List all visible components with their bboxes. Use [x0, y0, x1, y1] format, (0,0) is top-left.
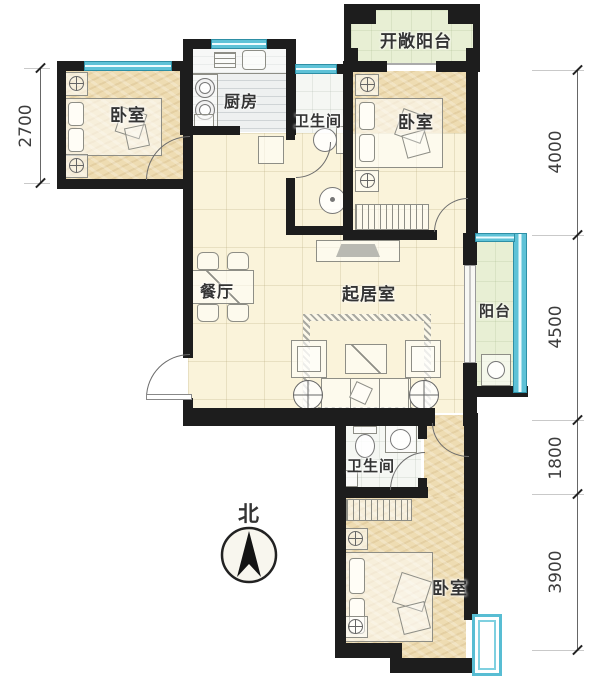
washing-machine-door-icon [487, 361, 505, 379]
kitchen-counter [192, 48, 288, 74]
lamp-icon [69, 76, 84, 91]
door-sill [387, 63, 436, 65]
wall [335, 413, 346, 653]
floor-plan: 卧室 厨房 卫生间 卧室 开敞阳台 餐厅 起居室 阳台 卫生间 卧室 北 270… [0, 0, 600, 680]
room-label-dining-room: 餐厅 [200, 278, 234, 302]
stove-burner [195, 78, 215, 98]
hallway-cabinet [258, 136, 284, 164]
wall [183, 408, 435, 426]
lamp-icon [348, 531, 363, 546]
wall [390, 658, 473, 673]
bay-window [472, 614, 502, 676]
dimension-label-4500: 4500 [546, 301, 566, 353]
compass [220, 526, 278, 584]
range-hood-icon [214, 52, 236, 68]
pillow [359, 102, 375, 130]
chair [227, 304, 249, 322]
window [84, 61, 172, 71]
column [466, 48, 480, 68]
armchair-cushion [297, 346, 321, 372]
dimension-label-3900: 3900 [546, 546, 566, 598]
pillow [349, 558, 365, 594]
side-table [293, 380, 323, 410]
dimension-line [40, 68, 41, 183]
dimension-line [577, 70, 578, 650]
balcony-sliding-door [464, 265, 476, 363]
room-label-bedroom-top-left: 卧室 [110, 101, 146, 126]
kitchen-sink [242, 50, 266, 70]
lamp-icon [360, 77, 375, 92]
chair [197, 304, 219, 322]
room-label-bedroom-bottom: 卧室 [432, 574, 468, 599]
wall [418, 423, 427, 439]
coffee-table [345, 344, 387, 374]
dimension-label-4000: 4000 [546, 126, 566, 178]
wall [183, 39, 193, 134]
pillow [68, 128, 84, 152]
washbasin [390, 429, 411, 450]
room-label-living-room: 起居室 [342, 280, 396, 305]
entry-door-leaf [146, 394, 192, 400]
window [475, 233, 515, 242]
chair [227, 252, 249, 270]
wall [57, 61, 66, 189]
armchair-cushion [411, 346, 435, 372]
north-label: 北 [238, 498, 260, 528]
window [513, 233, 527, 393]
pillow [68, 102, 84, 126]
wall [335, 643, 397, 658]
toilet-tank [353, 426, 377, 434]
pillow [359, 134, 375, 162]
room-label-bathroom-top: 卫生间 [294, 110, 342, 131]
north-arrow-icon [220, 526, 278, 584]
wall [57, 179, 190, 189]
lamp-icon [360, 173, 375, 188]
wall [343, 230, 437, 240]
window [295, 64, 337, 74]
wall [343, 64, 353, 235]
blanket [124, 124, 150, 150]
side-table [409, 380, 439, 410]
room-label-balcony: 阳台 [479, 300, 511, 321]
faucet-icon [330, 197, 335, 202]
chair [197, 252, 219, 270]
room-label-kitchen: 厨房 [224, 88, 258, 112]
dimension-label-1800: 1800 [546, 432, 566, 484]
lamp-icon [348, 619, 363, 634]
room-label-bathroom-bottom: 卫生间 [347, 455, 395, 476]
window [211, 39, 267, 49]
room-label-open-balcony: 开敞阳台 [380, 27, 452, 52]
dimension-label-2700: 2700 [16, 100, 36, 152]
tv [336, 244, 380, 257]
wardrobe [346, 499, 412, 521]
lamp-icon [69, 158, 84, 173]
wardrobe [355, 204, 429, 230]
room-floor-bedroom-bottom-ext [397, 640, 466, 660]
entry-door-arc [146, 354, 190, 398]
room-label-bedroom-top-right: 卧室 [398, 108, 434, 133]
column [344, 48, 358, 68]
